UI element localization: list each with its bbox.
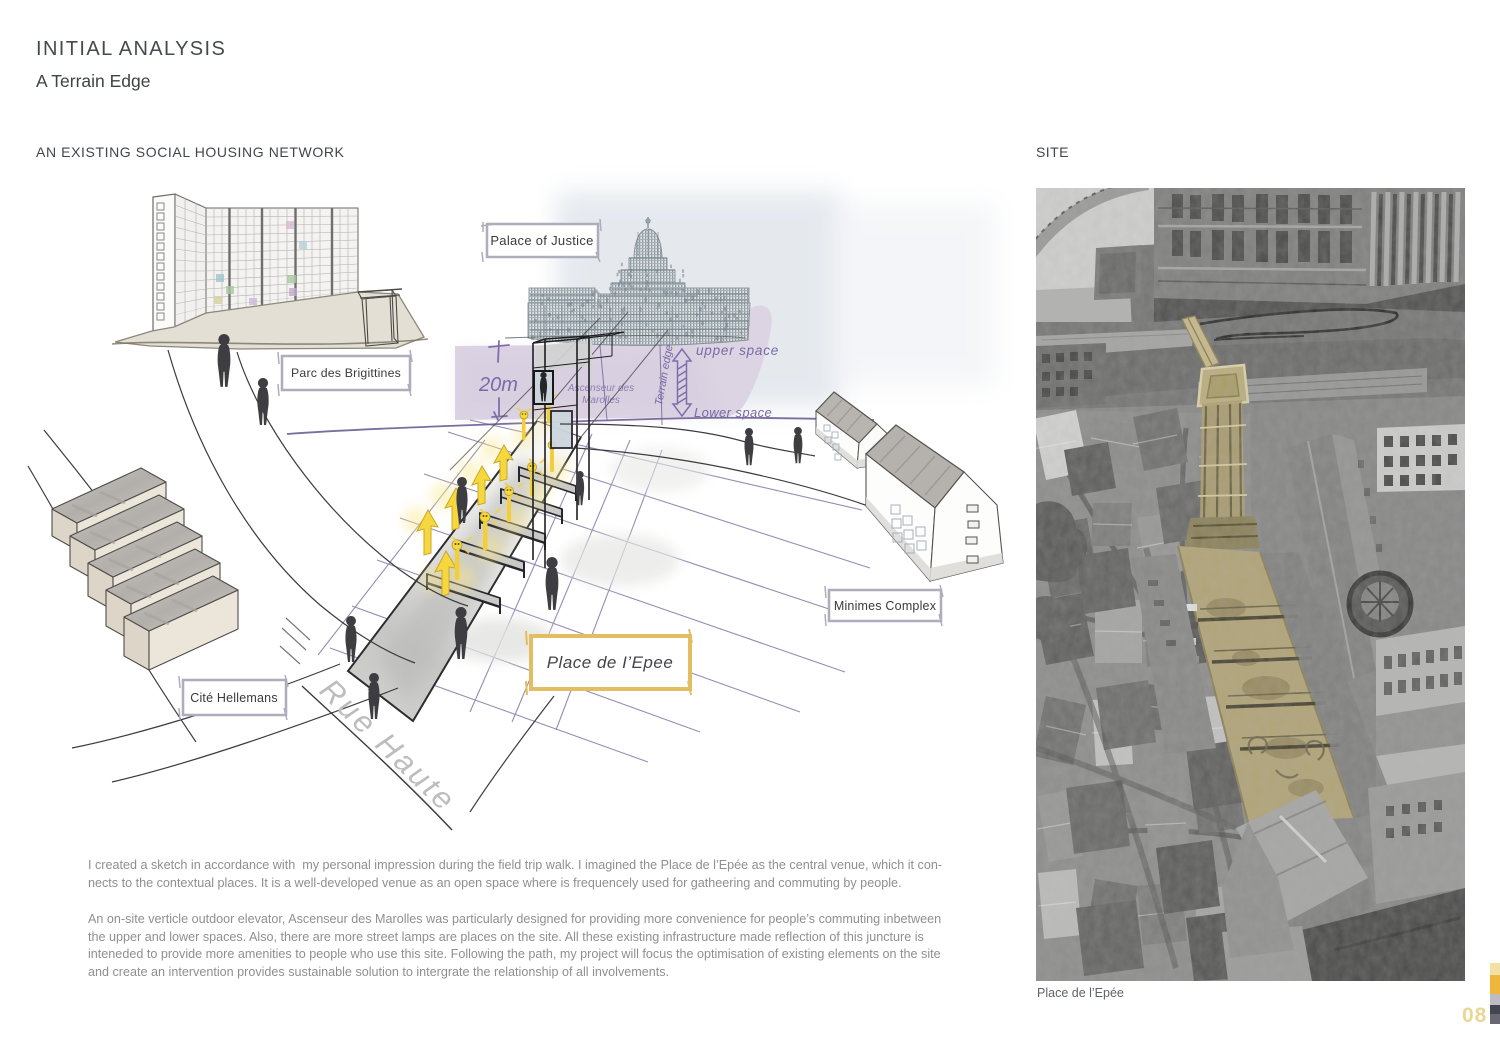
svg-text:Cité Hellemans: Cité Hellemans xyxy=(190,691,278,705)
svg-text:Minimes Complex: Minimes Complex xyxy=(834,599,937,613)
svg-text:Palace of Justice: Palace of Justice xyxy=(490,233,593,248)
svg-text:upper space: upper space xyxy=(696,343,779,358)
svg-text:20m: 20m xyxy=(478,374,518,396)
svg-text:Lower space: Lower space xyxy=(694,405,772,420)
svg-text:Parc des Brigittines: Parc des Brigittines xyxy=(291,366,401,380)
svg-text:Place de I’Epee: Place de I’Epee xyxy=(547,653,674,672)
